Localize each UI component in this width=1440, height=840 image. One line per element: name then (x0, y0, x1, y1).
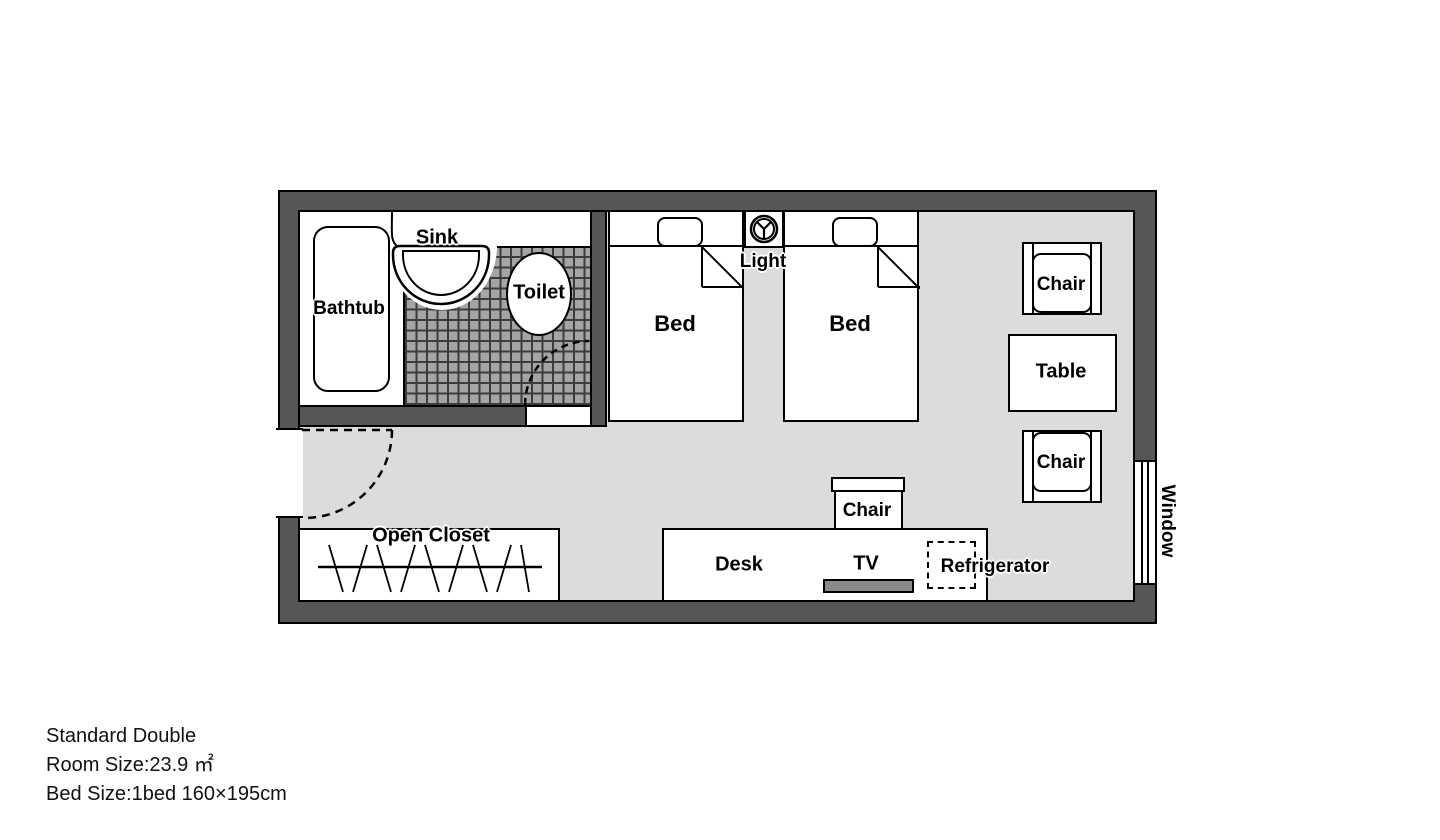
sink-icon (388, 211, 492, 307)
floor-plan-page: Bathtub Sink Toilet Bed Bed Light Chair … (0, 0, 1440, 840)
caption-bed-size: Bed Size:1bed 160×195cm (46, 780, 287, 809)
light-icon (746, 212, 782, 246)
pillow-icon (657, 217, 703, 247)
window-glass (1133, 460, 1157, 585)
refrigerator-label: Refrigerator (941, 556, 1050, 578)
light-label: Light (740, 251, 786, 273)
toilet-label: Toilet (513, 282, 565, 305)
bed-left-label: Bed (654, 311, 696, 337)
ceiling-light-box (744, 210, 784, 248)
tv-label: TV (853, 553, 879, 576)
sink-label: Sink (416, 227, 458, 250)
bathroom-door-opening (525, 407, 590, 427)
bathtub-label: Bathtub (313, 298, 385, 320)
chair-top-label: Chair (1037, 274, 1086, 296)
tv-screen (823, 579, 914, 593)
pillow-icon (832, 217, 878, 247)
outer-wall: Bathtub Sink Toilet Bed Bed Light Chair … (278, 190, 1157, 624)
caption-room-size: Room Size:23.9 ㎡ (46, 751, 287, 780)
bed-fold-icon (876, 245, 920, 289)
window-glazing-line (1141, 462, 1143, 583)
bed-fold-icon (700, 245, 744, 289)
chair-bottom-label: Chair (1037, 452, 1086, 474)
table-label: Table (1036, 361, 1087, 384)
entrance-door-swing-icon (301, 427, 396, 522)
open-closet-label: Open Closet (372, 525, 490, 548)
caption-room-type: Standard Double (46, 722, 287, 751)
window-glazing-line (1147, 462, 1149, 583)
bathroom-partition-wall (590, 210, 607, 427)
closet-rail-hangers-icon (312, 542, 548, 594)
desk-label: Desk (715, 554, 763, 577)
entrance-door-opening (276, 428, 303, 518)
desk-chair-label: Chair (843, 500, 892, 522)
caption: Standard Double Room Size:23.9 ㎡ Bed Siz… (46, 722, 287, 809)
window-label: Window (1156, 485, 1178, 558)
bed-right-label: Bed (829, 311, 871, 337)
bathroom-door-swing-icon (524, 339, 590, 407)
